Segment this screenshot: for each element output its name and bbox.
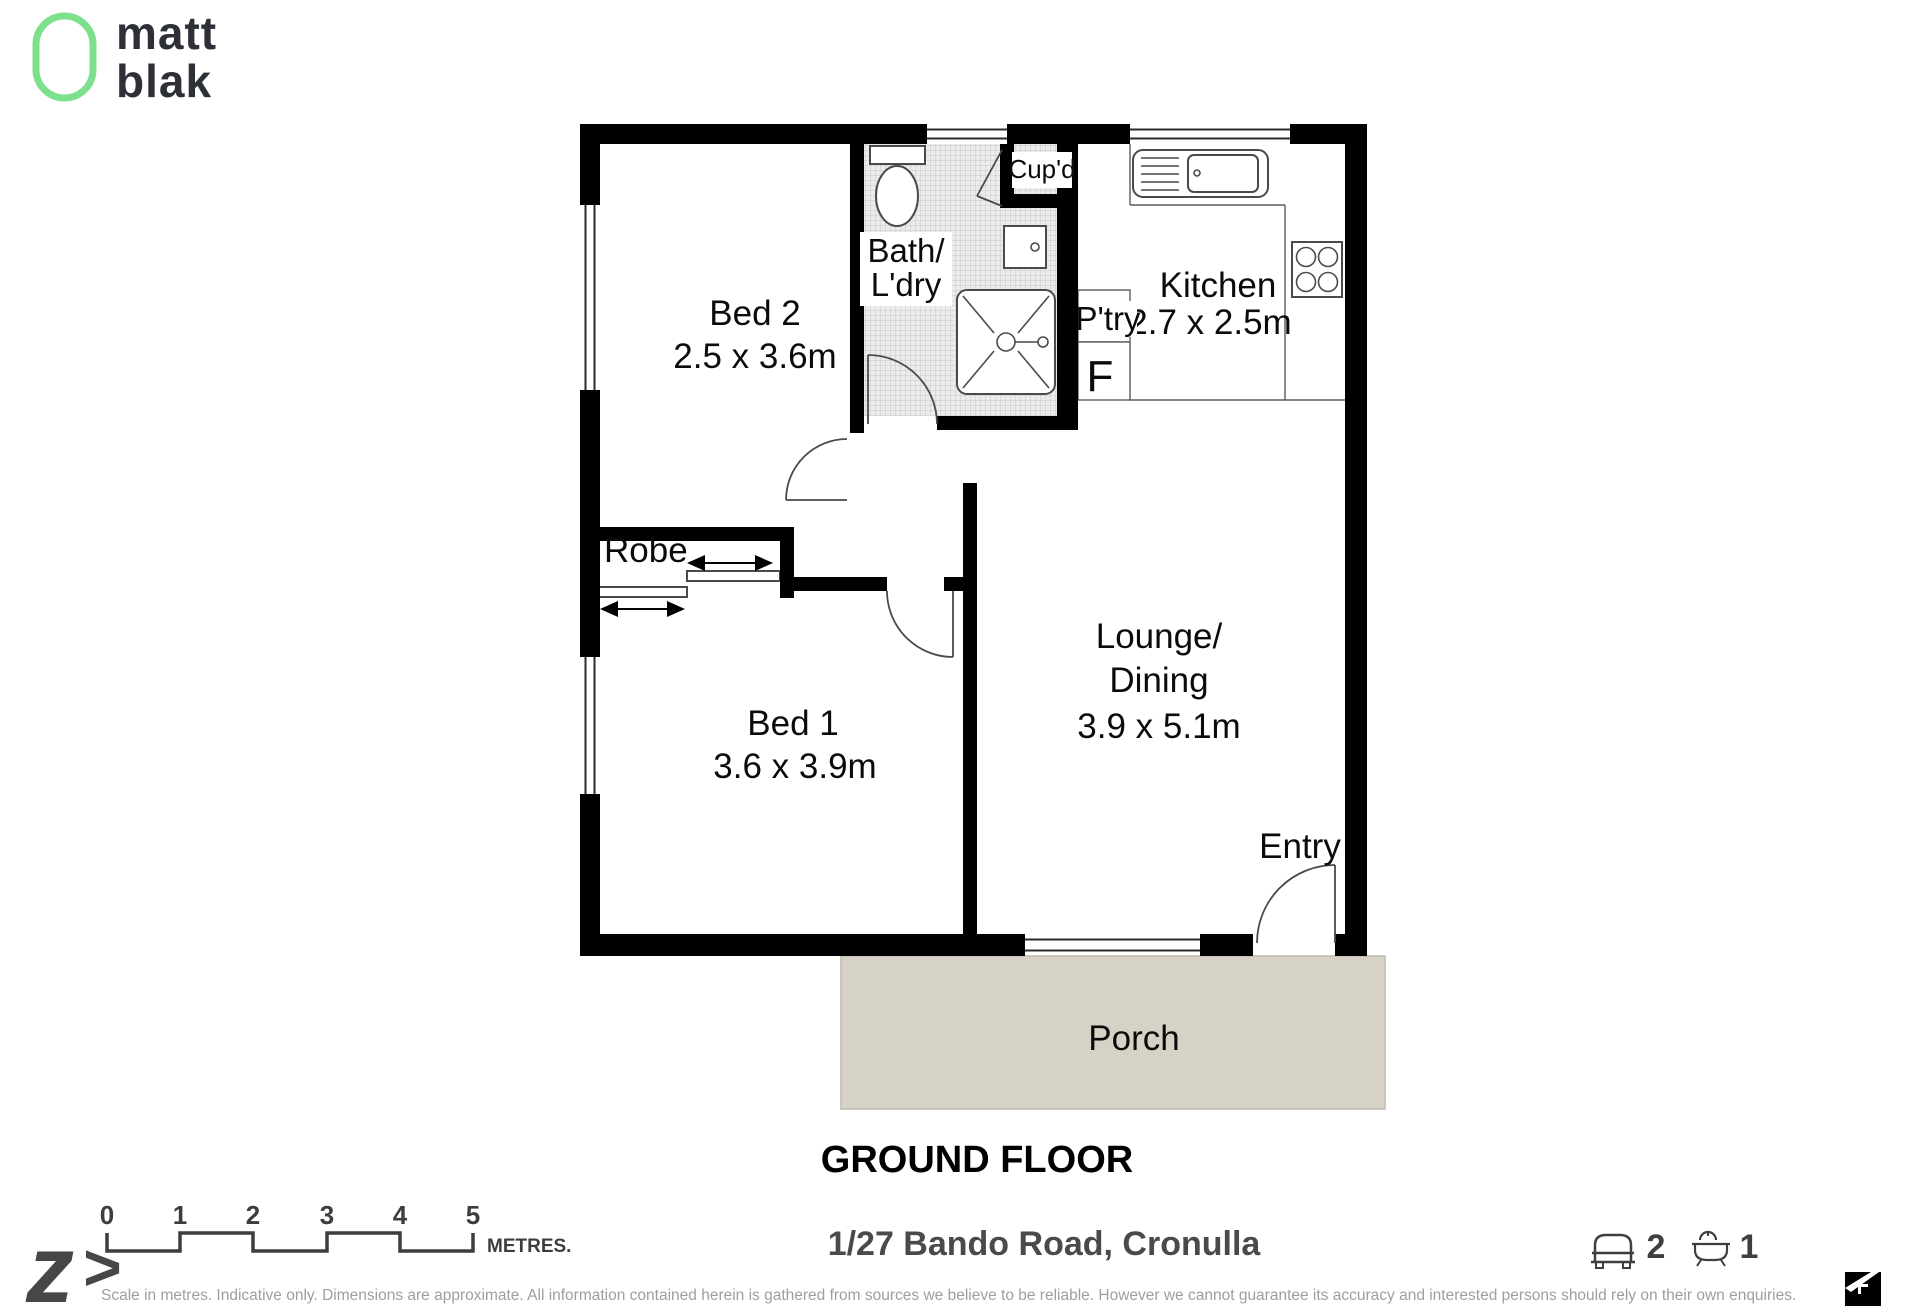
bath-label-2: L'dry xyxy=(871,266,942,303)
scale-unit-label: METRES. xyxy=(487,1236,571,1257)
fridge-label: F xyxy=(1087,352,1114,401)
mattblak-oval-icon xyxy=(36,16,93,98)
bath-count: 1 xyxy=(1740,1228,1759,1266)
kitchen-sink-icon xyxy=(1133,150,1268,197)
bed2-label: Bed 2 xyxy=(709,294,800,333)
scale-tick-0: 0 xyxy=(100,1200,114,1230)
mattblak-logo: matt blak xyxy=(36,7,217,107)
kitchen-dims: 2.7 x 2.5m xyxy=(1128,303,1291,342)
bed2-dims: 2.5 x 3.6m xyxy=(673,337,836,376)
entry-label: Entry xyxy=(1259,827,1341,866)
bed-icon xyxy=(1591,1235,1635,1268)
bed1-dims: 3.6 x 3.9m xyxy=(713,747,876,786)
lounge-dims: 3.9 x 5.1m xyxy=(1077,707,1240,746)
kitchen-label: Kitchen xyxy=(1160,266,1277,305)
bath-count-group: 1 xyxy=(1692,1228,1758,1266)
logo-word-1: matt xyxy=(116,7,217,59)
bath-icon xyxy=(1692,1232,1730,1266)
floorplan-canvas: matt blak Porch xyxy=(0,0,1920,1316)
floor-title: GROUND FLOOR xyxy=(821,1139,1133,1181)
corner-logo-icon xyxy=(1845,1272,1881,1306)
washing-machine-icon xyxy=(1004,226,1046,268)
bed1-label: Bed 1 xyxy=(747,704,838,743)
robe-label: Robe xyxy=(604,531,688,570)
address-label: 1/27 Bando Road, Cronulla xyxy=(828,1225,1262,1263)
scale-tick-4: 4 xyxy=(393,1200,408,1230)
scale-tick-5: 5 xyxy=(466,1200,480,1230)
bed-count-group: 2 xyxy=(1591,1228,1665,1268)
bed-count: 2 xyxy=(1647,1228,1666,1266)
disclaimer-text: Scale in metres. Indicative only. Dimens… xyxy=(101,1287,1796,1304)
lounge-label-2: Dining xyxy=(1109,661,1208,700)
porch-area: Porch xyxy=(841,956,1385,1109)
door-bed2 xyxy=(786,439,847,500)
stove-icon xyxy=(1292,242,1342,297)
scale-tick-3: 3 xyxy=(320,1200,334,1230)
cupboard-label: Cup'd xyxy=(1008,154,1075,184)
scale-bar-wave xyxy=(107,1233,473,1251)
scale-tick-1: 1 xyxy=(173,1200,187,1230)
door-bed1 xyxy=(887,591,953,657)
door-entry xyxy=(1257,865,1335,943)
logo-word-2: blak xyxy=(116,55,212,107)
floorplan-page: matt blak Porch xyxy=(0,0,1920,1316)
zed-glyph: z xyxy=(25,1216,74,1316)
lounge-label-1: Lounge/ xyxy=(1096,617,1223,656)
pantry-label: P'try xyxy=(1076,300,1141,337)
scale-bar: 0 1 2 3 4 5 METRES. xyxy=(100,1200,572,1257)
bath-label-1: Bath/ xyxy=(867,232,945,269)
scale-tick-2: 2 xyxy=(246,1200,260,1230)
shower-icon xyxy=(957,290,1055,394)
porch-label: Porch xyxy=(1088,1019,1179,1058)
